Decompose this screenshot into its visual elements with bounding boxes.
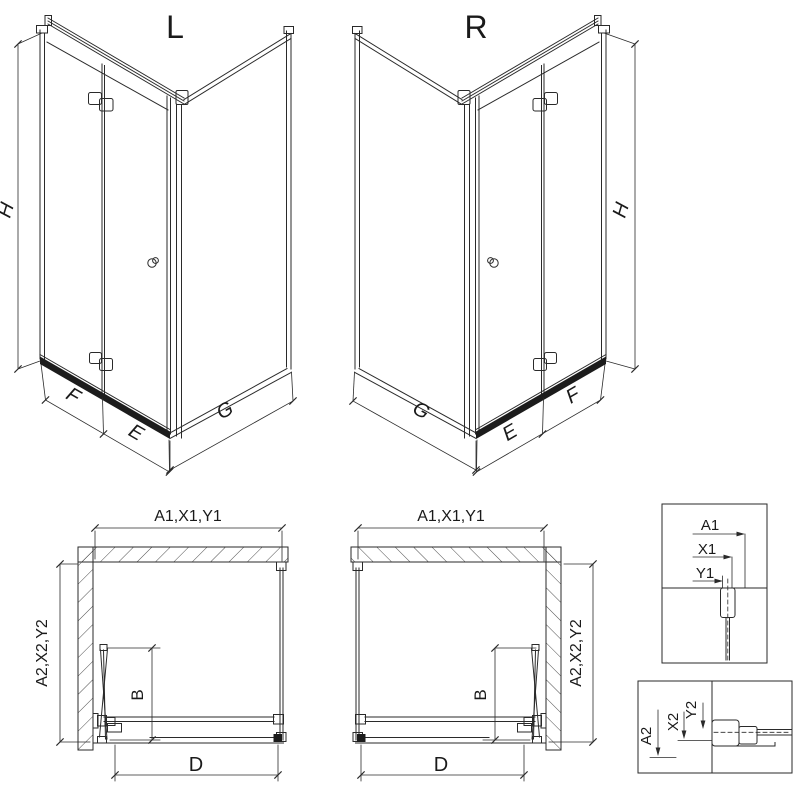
plan-left-dim-b: B [128, 689, 147, 700]
plan-left-dim-top: A1,X1,Y1 [154, 508, 222, 525]
detail-bottom-dim-a2: A2 [638, 727, 655, 745]
detail-bottom-wall-profile [712, 720, 791, 746]
detail-top-wall-profile [721, 579, 736, 660]
view-left-dim-e: E [125, 420, 148, 446]
view-left-dim-f: F [62, 383, 85, 409]
view-left-dimensions [15, 33, 296, 475]
plan-left-dim-d: D [189, 754, 203, 776]
shower-3d-view-left [37, 16, 294, 440]
plan-view-right [351, 547, 561, 750]
view-right-dim-f: F [562, 382, 585, 408]
plan-view-left [78, 547, 288, 750]
view-left-label: L [166, 9, 184, 45]
shower-3d-view-right [353, 16, 610, 440]
shower-enclosure-diagram: L H F E G R H [0, 0, 800, 800]
plan-right-dim-b: B [471, 689, 490, 700]
view-right-dim-e: E [499, 420, 522, 446]
detail-top-dim-x1: X1 [698, 541, 716, 558]
detail-top-dim-a1: A1 [701, 517, 719, 534]
detail-bottom-dim-y2: Y2 [683, 701, 700, 719]
drawing-root: L H F E G R H [0, 9, 792, 781]
plan-left-dim-side: A2,X2,Y2 [34, 619, 51, 687]
view-right-dimensions [350, 33, 638, 475]
view-right-label: R [464, 9, 487, 45]
view-right-dim-g: G [409, 397, 433, 424]
view-left-dim-g: G [213, 397, 237, 424]
plan-right-dim-d: D [434, 754, 448, 776]
plan-right-dim-top: A1,X1,Y1 [417, 508, 485, 525]
detail-box-top: A1 X1 Y1 [662, 504, 767, 663]
detail-box-bottom: A2 X2 Y2 [638, 681, 792, 773]
detail-bottom-dim-x2: X2 [665, 713, 682, 731]
view-right-dim-h: H [609, 200, 634, 221]
plan-right-dim-side: A2,X2,Y2 [568, 619, 585, 687]
technical-drawing-page: L H F E G R H [0, 0, 800, 800]
view-left-dim-h: H [0, 200, 19, 221]
detail-top-dim-y1: Y1 [696, 565, 714, 582]
